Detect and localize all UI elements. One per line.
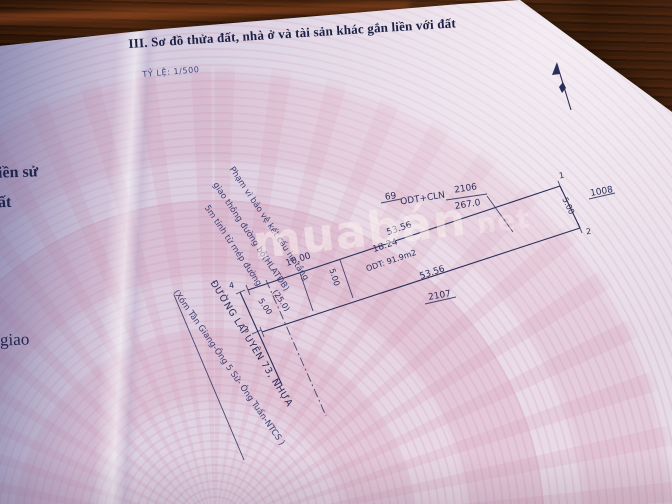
vertex-tick bbox=[252, 330, 261, 334]
photo-of-land-certificate: III. Sơ đồ thửa đất, nhà ở và tài sản kh… bbox=[0, 0, 672, 504]
vertex-label-4: 4 bbox=[228, 281, 235, 291]
segment-divider bbox=[340, 260, 353, 298]
dim-top-53: 53.56 bbox=[386, 220, 414, 238]
dim-right-5: 5.00 bbox=[560, 196, 576, 216]
vertex-label-1: 1 bbox=[558, 171, 565, 181]
parcel-area: 267.0 bbox=[454, 198, 481, 212]
road-centerline bbox=[266, 280, 326, 416]
neighbor-parcel-bottom: 2107 bbox=[428, 289, 452, 303]
parcel-land-use-code: ODT+CLN bbox=[400, 191, 446, 208]
parcel-number: 2106 bbox=[454, 182, 478, 196]
parcel-fraction-bar bbox=[446, 194, 487, 200]
document-page-wrapper: III. Sơ đồ thửa đất, nhà ở và tài sản kh… bbox=[0, 0, 672, 504]
parcel-diagram: 53.56 18.24 ODT: 91.9m2 53.56 10.00 5.00… bbox=[0, 0, 672, 504]
north-arrow-icon bbox=[552, 62, 571, 110]
vertex-label-2: 2 bbox=[585, 227, 592, 237]
document-page: III. Sơ đồ thửa đất, nhà ở và tài sản kh… bbox=[0, 0, 672, 504]
dim-width-18: 18.24 bbox=[372, 237, 400, 255]
neighbor-parcel-right: 1008 bbox=[590, 185, 615, 199]
dim-mid-5: 5.00 bbox=[327, 267, 341, 287]
parcel-leader-line bbox=[487, 196, 513, 232]
dim-bottom-53: 53.56 bbox=[419, 264, 447, 282]
neighbor-parcel-left: 69 bbox=[384, 191, 397, 203]
dim-road-25: (25.0) bbox=[271, 288, 292, 313]
dim-left-5: 5.00 bbox=[256, 297, 273, 317]
